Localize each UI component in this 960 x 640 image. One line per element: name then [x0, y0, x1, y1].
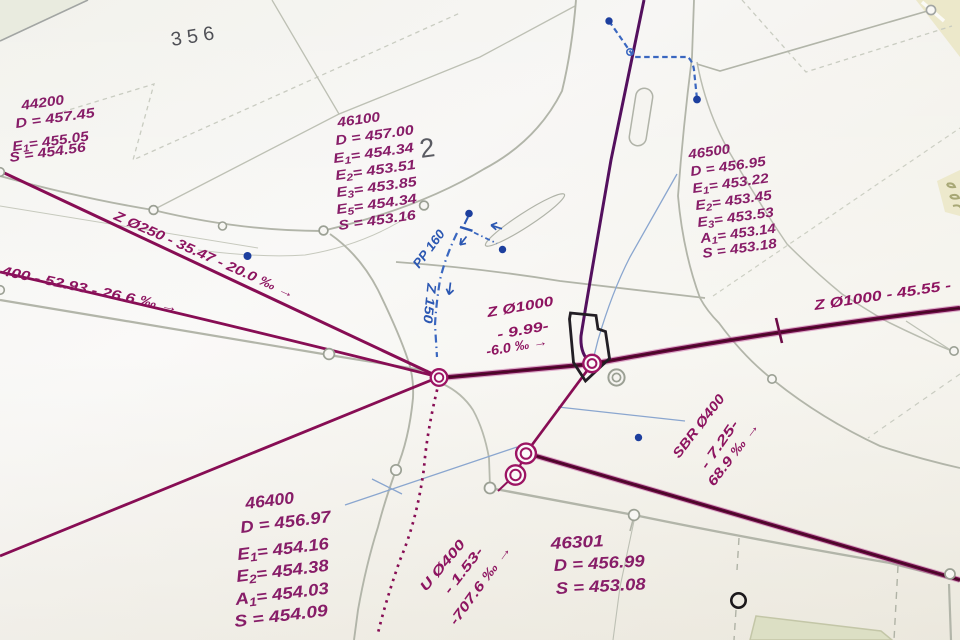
svg-text:46301: 46301	[549, 532, 604, 553]
